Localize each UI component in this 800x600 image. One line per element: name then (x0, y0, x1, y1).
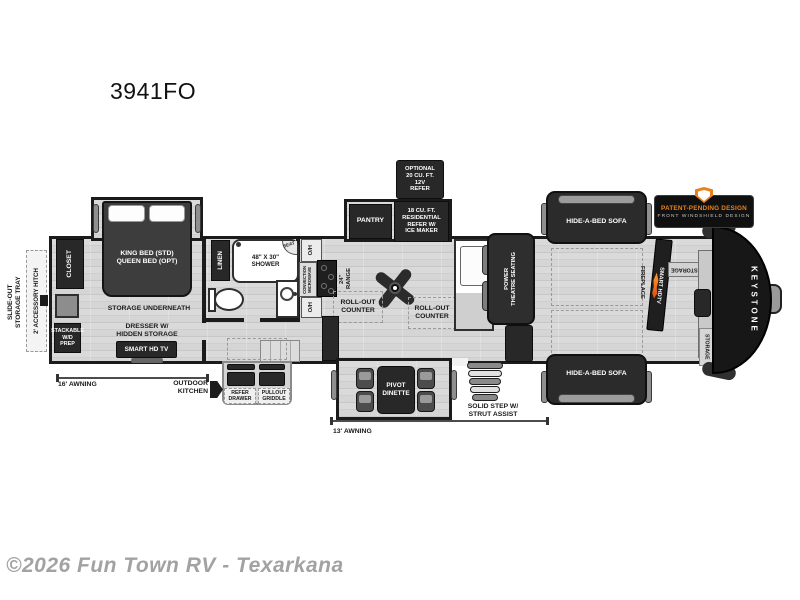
shower-head-icon (236, 242, 241, 247)
pillow (108, 205, 145, 222)
shower-label: 48" X 30" SHOWER (252, 254, 280, 269)
linen-label: LINEN (217, 251, 224, 270)
step (469, 378, 501, 385)
step (467, 362, 503, 369)
washer-dryer-prep: STACKABLE W/D PREP (54, 323, 81, 353)
sofa-top-label: HIDE-A-BED SOFA (566, 218, 626, 226)
fan-hub-dot (393, 286, 397, 290)
slide-tab (93, 204, 99, 233)
slide-tab (331, 370, 337, 400)
tv-stand (131, 358, 163, 363)
storage-shelf: STORAGE (668, 262, 700, 277)
refer-drawer-label: REFER DRAWER (228, 390, 251, 402)
storage-underneath-label: STORAGE UNDERNEATH (95, 305, 203, 313)
burner-icon (321, 265, 327, 271)
awning-cap (546, 417, 549, 425)
overhead-cabinet: O/H (301, 239, 322, 262)
dinette-table: PIVOT DINETTE (377, 366, 415, 414)
sofa-cushion (558, 195, 635, 204)
wall (202, 340, 206, 363)
residential-refrigerator: 18 CU. FT. RESIDENTIAL REFER W/ ICE MAKE… (394, 201, 449, 242)
dresser-label: DRESSER W/ HIDDEN STORAGE (109, 323, 185, 339)
kitchen-cabinet (322, 316, 339, 361)
dinette-chair (356, 391, 374, 412)
outdoor-refer-drawer (227, 372, 255, 386)
bath-sink (280, 287, 294, 301)
storage-shelf-label: STORAGE (671, 266, 698, 272)
closet: CLOSET (56, 239, 84, 289)
bedroom-tv-label: SMART HD TV (125, 346, 169, 354)
step (472, 394, 498, 401)
burner-icon (328, 274, 334, 280)
bedroom-tv: SMART HD TV (116, 341, 177, 358)
outdoor-kitchen-drawer (227, 364, 255, 370)
sofa-cushion (558, 394, 635, 403)
theatre-seating-label: POWER THEATRE SEATING (504, 252, 518, 306)
floorplan-page: 3941FO ©2026 Fun Town RV - Texarkana SLI… (0, 0, 800, 600)
rollout-counter-right: ROLL-OUT COUNTER (408, 297, 456, 329)
fireplace-label: FIREPLACE (636, 258, 647, 306)
dinette-chair (356, 368, 374, 389)
slide-tab (451, 370, 457, 400)
awning-16-label: 16' AWNING (58, 381, 118, 389)
linen-closet: LINEN (211, 240, 230, 281)
wall (202, 237, 206, 323)
closet-label: CLOSET (66, 250, 74, 278)
hitch-receiver (40, 295, 48, 306)
awning-13-label: 13' AWNING (333, 428, 393, 436)
dinette-chair (417, 368, 435, 389)
sofa-bottom-label: HIDE-A-BED SOFA (566, 370, 626, 378)
pullout-griddle-tag: PULLOUT GRIDDLE (258, 388, 290, 404)
pillow (149, 205, 185, 222)
awning-cap (330, 417, 333, 425)
optional-refer-badge: OPTIONAL 20 CU. FT. 12V REFER (396, 160, 444, 199)
patent-badge-line2: FRONT WINDSHIELD DESIGN (658, 214, 751, 219)
refer-label: 18 CU. FT. RESIDENTIAL REFER W/ ICE MAKE… (402, 208, 441, 235)
rug-outline (551, 310, 643, 358)
bed-label: KING BED (STD) QUEEN BED (OPT) (102, 250, 192, 266)
rug-outline (551, 248, 643, 306)
wall (260, 318, 300, 322)
patent-badge-line1: PATENT-PENDING DESIGN (661, 205, 747, 212)
step-label: SOLID STEP W/ STRUT ASSIST (452, 403, 534, 419)
refer-drawer-tag: REFER DRAWER (224, 388, 256, 404)
desk-chair (694, 289, 711, 317)
entry-cabinet (505, 325, 533, 362)
convection-microwave: CONVECTION MICROWAVE (299, 262, 317, 297)
theatre-seating: POWER THEATRE SEATING (487, 233, 535, 325)
optional-refer-label: OPTIONAL 20 CU. FT. 12V REFER (405, 166, 435, 193)
brand-logo: KEYSTONE (749, 266, 758, 334)
compartment-outline (227, 338, 287, 360)
burner-icon (321, 283, 327, 289)
pantry-label: PANTRY (357, 217, 384, 225)
microwave-label: CONVECTION MICROWAVE (303, 266, 313, 294)
slide-out-storage-tray-label: SLIDE-OUT STORAGE TRAY (4, 250, 26, 354)
rollout-counter-right-label: ROLL-OUT COUNTER (414, 305, 449, 321)
front-storage-label: STORAGE (703, 334, 709, 360)
faucet-icon (293, 292, 297, 296)
outdoor-kitchen-drawer (259, 364, 285, 370)
step (468, 370, 502, 377)
page-title: 3941FO (110, 78, 196, 105)
slide-tab (195, 204, 201, 233)
washer-dryer-label: STACKABLE W/D PREP (51, 328, 84, 347)
rollout-counter-left-label: ROLL-OUT COUNTER (340, 299, 375, 315)
bedroom-cabinet (55, 294, 79, 318)
outdoor-kitchen-label: OUTDOOR KITCHEN (164, 380, 208, 396)
awning-13-line (332, 420, 546, 422)
shield-inner (698, 190, 710, 201)
outdoor-griddle (259, 372, 285, 386)
step (470, 386, 500, 393)
dinette-chair (417, 391, 435, 412)
front-cap: KEYSTONE (712, 226, 772, 374)
dinette-label: PIVOT DINETTE (382, 382, 409, 397)
pantry: PANTRY (349, 204, 392, 239)
awning-16-line (58, 377, 208, 379)
pullout-griddle-label: PULLOUT GRIDDLE (262, 390, 287, 402)
oh-top-label: O/H (308, 245, 315, 255)
dealer-watermark: ©2026 Fun Town RV - Texarkana (6, 554, 344, 578)
overhead-cabinet: O/H (301, 297, 322, 318)
wall (202, 318, 244, 322)
toilet (214, 288, 244, 311)
oh-bottom-label: O/H (308, 302, 315, 312)
rollout-counter-left: ROLL-OUT COUNTER (333, 291, 383, 323)
